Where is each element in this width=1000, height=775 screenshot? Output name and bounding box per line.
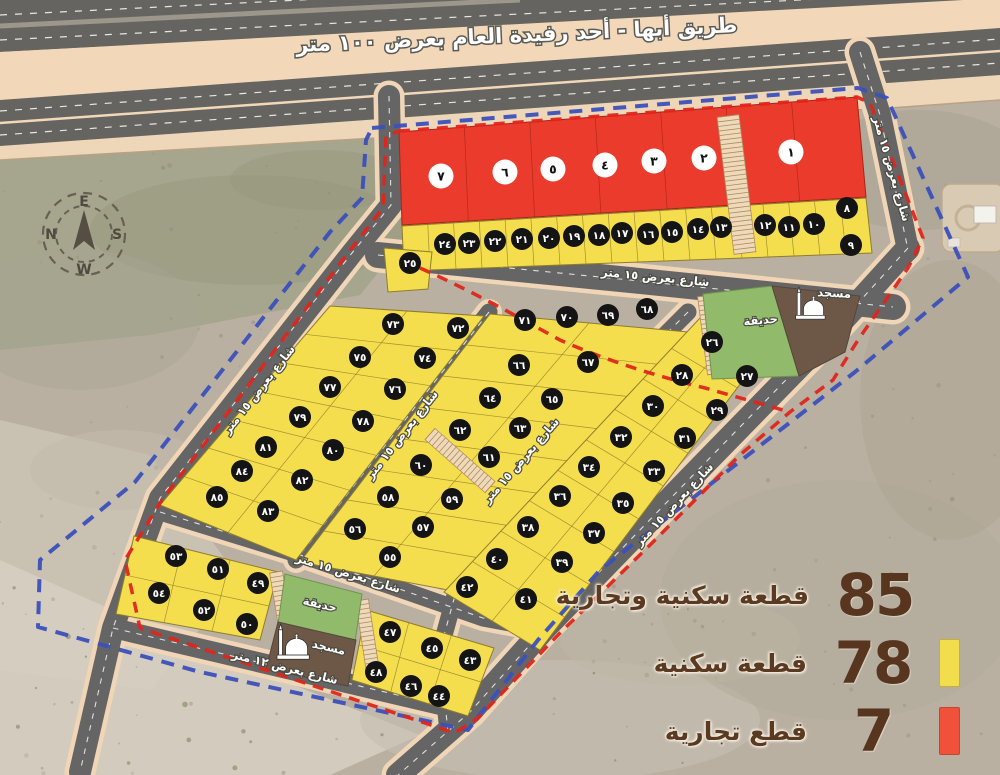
residential-plot-number: ٧٦ <box>389 384 402 396</box>
residential-plot-number: ١٠ <box>808 219 821 231</box>
legend-swatch-commercial <box>939 707 960 755</box>
residential-plot-number: ٢١ <box>516 234 529 246</box>
legend-row-commercial: قطع تجارية 7 <box>665 702 960 760</box>
residential-plot-number: ٥٤ <box>153 588 166 600</box>
legend-value-commercial: 7 <box>823 702 923 760</box>
legend-label-total: قطعة سكنية وتجارية <box>556 581 809 610</box>
subdivision-plan: طريق أبها - أحد رفيدة العام بعرض ١٠٠ متر… <box>0 0 1000 775</box>
compass-letter-right: S <box>112 227 122 243</box>
commercial-plot-number: ٦ <box>501 165 509 180</box>
residential-plot-number: ٢٥ <box>404 258 417 270</box>
residential-plot-number: ٢٩ <box>711 405 724 417</box>
compass-letter-left: N <box>45 227 57 243</box>
residential-plot-number: ٤٩ <box>252 578 265 590</box>
residential-plot-number: ٥٦ <box>349 524 362 536</box>
residential-plot-number: ٧٧ <box>324 382 337 394</box>
residential-plot-number: ٨٠ <box>327 445 340 457</box>
residential-plot-number: ٨ <box>844 203 851 215</box>
residential-plot-number: ٦٦ <box>513 360 526 372</box>
residential-plot-number: ٨١ <box>260 442 273 454</box>
residential-plot-number: ٢٠ <box>543 233 556 245</box>
residential-plot-number: ٣٨ <box>522 522 535 534</box>
commercial-plot-number: ٢ <box>700 151 708 166</box>
residential-plot-number: ٧٤ <box>419 353 432 365</box>
residential-plot-number: ٥٢ <box>198 605 211 617</box>
residential-plot-number: ٣٥ <box>617 498 630 510</box>
residential-plot-number: ٤١ <box>520 594 533 606</box>
residential-plot-number: ١٧ <box>616 228 629 240</box>
legend-swatch-residential <box>939 639 960 687</box>
residential-plot-number: ٧٥ <box>354 352 367 364</box>
mosque-label: مسجد <box>817 285 851 301</box>
residential-plot-number: ١١ <box>783 222 796 234</box>
residential-plot-number: ٤٢ <box>461 582 474 594</box>
residential-plot-number: ٥١ <box>212 564 225 576</box>
residential-plot-number: ١٩ <box>568 231 581 243</box>
park-label: حديقة <box>743 312 779 329</box>
legend-label-residential: قطعة سكنية <box>654 649 807 678</box>
residential-plot-number: ٤٨ <box>370 667 383 679</box>
residential-plot-number: ٦٠ <box>415 460 428 472</box>
residential-plot-number: ٧٨ <box>357 416 370 428</box>
residential-plot-number: ٤٠ <box>491 554 504 566</box>
residential-plot-number: ١٤ <box>692 224 705 236</box>
building-compound <box>942 184 1000 252</box>
commercial-plot-number: ٧ <box>437 169 445 184</box>
residential-plot-number: ٧٢ <box>452 323 465 335</box>
legend-swatch-spacer <box>941 572 960 618</box>
residential-plot-number: ٦٩ <box>602 310 615 322</box>
commercial-plot-number: ٤ <box>601 158 609 173</box>
residential-plot-number: ٢٨ <box>676 370 689 382</box>
residential-plot-number: ٧٠ <box>561 312 574 324</box>
building <box>974 206 996 223</box>
residential-plot-number: ٥٧ <box>417 522 430 534</box>
residential-plot-number: ٧١ <box>519 315 532 327</box>
residential-plot-number: ٢٤ <box>439 239 452 251</box>
residential-plot-number: ١٥ <box>666 227 679 239</box>
residential-plot-number: ١٣ <box>715 222 728 234</box>
residential-plot-number: ٢٧ <box>741 371 754 383</box>
residential-plot-number: ٤٤ <box>433 691 446 703</box>
residential-plot-number: ٧٩ <box>294 412 307 424</box>
residential-plot-number: ٦٢ <box>454 425 467 437</box>
legend-value-total: 85 <box>825 566 925 624</box>
residential-plot-number: ٨٣ <box>262 506 275 518</box>
residential-plot-number: ١٦ <box>642 229 655 241</box>
commercial-plot-number: ١ <box>787 145 795 160</box>
residential-plot-number: ٧٣ <box>387 319 400 331</box>
compass-letter-bottom: W <box>76 262 91 278</box>
residential-plot-number: ٦٧ <box>582 357 595 369</box>
residential-plot-number: ٥٥ <box>384 552 397 564</box>
residential-plot-number: ٦٣ <box>514 423 527 435</box>
residential-plot-number: ٣٣ <box>648 466 661 478</box>
residential-plot-number: ٨٥ <box>211 492 224 504</box>
residential-plot-number: ٦١ <box>483 452 496 464</box>
residential-plot-number: ٦٤ <box>484 393 497 405</box>
residential-plot-number: ٣٦ <box>554 491 567 503</box>
residential-plot-number: ٢٦ <box>706 337 719 349</box>
residential-plot-number: ٤٧ <box>384 627 397 639</box>
residential-plot-number: ٢٣ <box>463 238 476 250</box>
residential-plot-number: ٥٣ <box>170 551 183 563</box>
residential-plot-number: ٣٢ <box>615 432 628 444</box>
legend-value-residential: 78 <box>823 634 923 692</box>
residential-plot-number: ٦٨ <box>641 304 654 316</box>
residential-plot-number: ٣٠ <box>647 401 660 413</box>
residential-plot-number: ٣١ <box>679 433 692 445</box>
residential-plot-number: ٤٦ <box>405 681 418 693</box>
commercial-plot-number: ٥ <box>549 162 557 177</box>
residential-plot-number: ٦٥ <box>546 394 559 406</box>
residential-plot-number: ١٢ <box>759 220 772 232</box>
legend-row-residential: قطعة سكنية 78 <box>654 634 960 692</box>
residential-plot-number: ٤٥ <box>426 643 439 655</box>
residential-plot-number: ٤٣ <box>464 655 477 667</box>
residential-plot-number: ٥٨ <box>382 492 395 504</box>
residential-plot-number: ٥٠ <box>241 619 254 631</box>
commercial-plot-number: ٣ <box>650 154 658 169</box>
residential-plot-number: ٥٩ <box>446 494 459 506</box>
residential-plot-number: ١٨ <box>593 230 606 242</box>
compass-letter-top: E <box>79 194 89 210</box>
residential-plot-number: ٣٤ <box>583 462 596 474</box>
residential-plot-number: ٢٢ <box>489 236 502 248</box>
residential-plot-number: ٣٧ <box>588 528 601 540</box>
residential-plot-number: ٨٢ <box>296 475 309 487</box>
legend-label-commercial: قطع تجارية <box>665 717 807 746</box>
residential-plot-number: ٨٤ <box>236 466 249 478</box>
residential-plot-number: ٩ <box>848 240 855 252</box>
legend-row-total: قطعة سكنية وتجارية 85 <box>556 566 960 624</box>
